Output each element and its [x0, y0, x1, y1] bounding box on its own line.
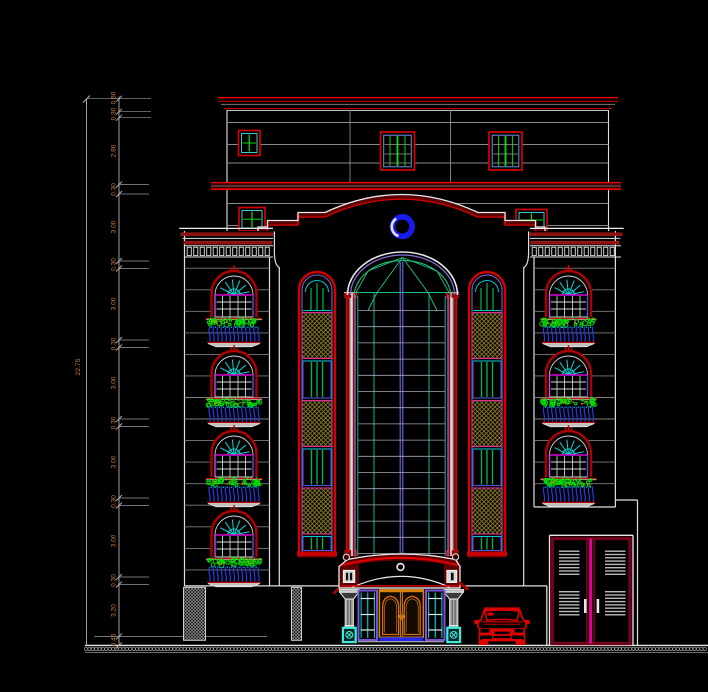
svg-text:0.45: 0.45: [111, 633, 118, 646]
svg-text:2.80: 2.80: [111, 144, 118, 157]
svg-text:0.30: 0.30: [111, 574, 118, 587]
svg-text:0.30: 0.30: [111, 416, 118, 429]
svg-text:3.00: 3.00: [111, 220, 118, 233]
svg-text:3.00: 3.00: [111, 376, 118, 389]
svg-text:0.30: 0.30: [111, 183, 118, 196]
svg-text:0.30: 0.30: [111, 495, 118, 508]
svg-text:0.30: 0.30: [111, 107, 118, 120]
svg-text:0.30: 0.30: [111, 258, 118, 271]
svg-text:0.50: 0.50: [111, 91, 118, 104]
svg-text:3.20: 3.20: [111, 604, 118, 617]
svg-text:0.30: 0.30: [111, 337, 118, 350]
svg-text:3.00: 3.00: [111, 455, 118, 468]
svg-text:22.75: 22.75: [75, 358, 82, 375]
svg-text:3.00: 3.00: [111, 534, 118, 547]
svg-text:3.00: 3.00: [111, 297, 118, 310]
